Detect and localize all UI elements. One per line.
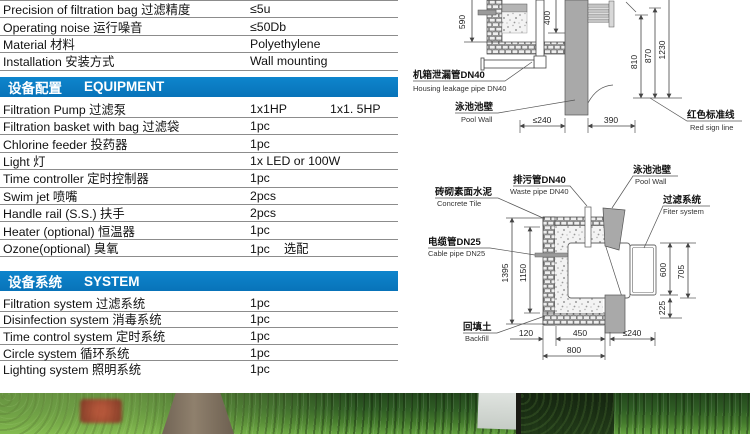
row-label: Swim jet 喷嘴: [0, 187, 250, 205]
swim-jet-fixture: [588, 1, 614, 27]
row-label: Heater (optional) 恒温器: [0, 222, 250, 240]
housing-leakage-label-zh: 机箱泄漏管DN40: [413, 69, 485, 81]
row-value: 1pc: [250, 346, 398, 360]
row-label: Light 灯: [0, 152, 250, 170]
table-row: Heater (optional) 恒温器 1pc: [0, 222, 398, 239]
table-row: Circle system 循环系统 1pc: [0, 345, 398, 362]
row-label: Ozone(optional) 臭氧: [0, 239, 250, 257]
table-row: Installation 安装方式 Wall mounting: [0, 53, 398, 70]
tree-trunk: [158, 393, 238, 434]
table-row: Swim jet 喷嘴 2pcs: [0, 188, 398, 205]
fence-post: [516, 393, 521, 434]
row-label: Precision of filtration bag 过滤精度: [0, 0, 250, 18]
table-row: Handle rail (S.S.) 扶手 2pcs: [0, 205, 398, 222]
row-value: Polyethylene: [250, 37, 398, 51]
cable-pipe-label-zh: 电缆管DN25: [428, 236, 482, 248]
table-row: Operating noise 运行噪音 ≤50Db: [0, 18, 398, 35]
brick-bottom-course: [543, 313, 605, 325]
pool-wall-label-en: Pool Wall: [635, 177, 667, 186]
dim-705: 705: [676, 265, 686, 279]
filter-system-label-zh: 过滤系统: [663, 194, 702, 206]
spec-panel: Precision of filtration bag 过滤精度 ≤5u Ope…: [0, 0, 398, 377]
pipe-cap: [481, 58, 484, 70]
dim-810: 810: [629, 55, 639, 69]
table-row: Time control system 定时系统 1pc: [0, 328, 398, 345]
dim-450: 450: [573, 328, 587, 338]
row-value: 2pcs: [250, 189, 398, 203]
row-value-2: 选配: [284, 242, 309, 256]
table-row: Chlorine feeder 投药器 1pc: [0, 135, 398, 152]
brick-pillar: [487, 0, 502, 43]
dim-590: 590: [457, 15, 467, 29]
vertical-pipe: [536, 0, 544, 58]
equipment-table: Filtration Pump 过滤泵 1x1HP1x1. 5HP Filtra…: [0, 101, 398, 258]
section-title-en: SYSTEM: [84, 274, 140, 289]
row-label: Filtration system 过滤系统: [0, 294, 250, 312]
dim-1150: 1150: [518, 264, 528, 283]
table-row: Material 材料 Polyethylene: [0, 36, 398, 53]
row-value: 1pc: [250, 242, 270, 256]
cable-pipe: [535, 253, 568, 257]
red-sign-blur: [80, 399, 122, 423]
row-label: Circle system 循环系统: [0, 344, 250, 362]
garden-photo: [0, 393, 750, 434]
cable-pipe-label-en: Cable pipe DN25: [428, 249, 485, 258]
brick-course: [487, 42, 565, 54]
table-row: Filtration Pump 过滤泵 1x1HP1x1. 5HP: [0, 101, 398, 118]
row-label: Material 材料: [0, 35, 250, 53]
dim-1395: 1395: [500, 263, 510, 282]
row-value: 1pc: [250, 119, 398, 133]
row-label: Chlorine feeder 投药器: [0, 135, 250, 153]
section-title-zh: 设备配置: [8, 77, 62, 97]
row-label: Lighting system 照明系统: [0, 360, 250, 378]
pipe-elbow: [534, 56, 546, 68]
dark-hedge: [518, 393, 614, 434]
row-label: Disinfection system 消毒系统: [0, 310, 250, 328]
table-row: Time controller 定时控制器 1pc: [0, 170, 398, 187]
concrete-fill: [555, 243, 568, 298]
white-sign: [477, 393, 518, 430]
row-label: Time control system 定时系统: [0, 327, 250, 345]
table-row: Lighting system 照明系统 1pc: [0, 361, 398, 377]
ground-arc: [588, 85, 613, 103]
wall-mount-section-diagram: 590 400 机箱泄漏管DN40 Housing leakage pipe D…: [398, 0, 750, 140]
pool-wall-label-en: Pool Wall: [461, 115, 493, 124]
filter-system-box: [630, 245, 656, 295]
equipment-section-header: 设备配置 EQUIPMENT: [0, 77, 398, 97]
pool-wall-label-zh: 泳池池壁: [633, 164, 672, 176]
dim-800: 800: [567, 345, 581, 355]
row-label: Operating noise 运行噪音: [0, 18, 250, 36]
row-label: Handle rail (S.S.) 扶手: [0, 204, 250, 222]
dim-240: ≤240: [623, 328, 642, 338]
row-value: 1pc: [250, 296, 398, 310]
general-spec-table: Precision of filtration bag 过滤精度 ≤5u Ope…: [0, 0, 398, 71]
table-row: Light 灯 1x LED or 100W: [0, 153, 398, 170]
filter-system-label-en: Fiter system: [663, 207, 704, 216]
row-value: 1x1HP: [250, 102, 287, 116]
dim-600: 600: [658, 263, 668, 277]
dim-120: 120: [519, 328, 533, 338]
section-title-en: EQUIPMENT: [84, 79, 164, 94]
concrete-tile-label-en: Concrete Tile: [437, 199, 481, 208]
dim-1230: 1230: [657, 40, 667, 59]
system-section-header: 设备系统 SYSTEM: [0, 271, 398, 291]
concrete-tile-label-zh: 砖砌素面水泥: [435, 186, 493, 198]
row-label: Time controller 定时控制器: [0, 169, 250, 187]
spec-sheet-page: Precision of filtration bag 过滤精度 ≤5u Ope…: [0, 0, 750, 434]
row-value: ≤50Db: [250, 20, 398, 34]
leakage-pipe: [484, 60, 534, 68]
row-value: Wall mounting: [250, 54, 398, 68]
dim-390: 390: [604, 115, 618, 125]
row-value: 1pc: [250, 171, 398, 185]
row-label: Installation 安装方式: [0, 52, 250, 70]
concrete-fill: [555, 298, 603, 313]
backfill-label-en: Backfill: [465, 334, 489, 343]
leader-line: [626, 2, 636, 12]
table-row: Precision of filtration bag 过滤精度 ≤5u: [0, 1, 398, 18]
waste-pipe: [585, 207, 591, 247]
dim-400: 400: [542, 11, 552, 25]
row-label: Filtration basket with bag 过滤袋: [0, 117, 250, 135]
waste-pipe-label-en: Waste pipe DN40: [510, 187, 569, 196]
row-value: 1x LED or 100W: [250, 154, 398, 168]
system-table: Filtration system 过滤系统 1pc Disinfection …: [0, 295, 398, 377]
row-label: Filtration Pump 过滤泵: [0, 100, 250, 118]
pool-wall: [565, 0, 588, 115]
section-title-zh: 设备系统: [8, 271, 62, 291]
row-value: 1pc: [250, 223, 398, 237]
dim-240: ≤240: [533, 115, 552, 125]
waste-pipe-label-zh: 排污管DN40: [513, 174, 566, 186]
concrete-fill: [502, 12, 527, 33]
pool-wall-label-zh: 泳池池壁: [455, 101, 494, 113]
row-value: 1pc: [250, 329, 398, 343]
table-row: Disinfection system 消毒系统 1pc: [0, 312, 398, 329]
brick-left-wall: [543, 217, 555, 325]
table-row: Filtration system 过滤系统 1pc: [0, 295, 398, 312]
row-value: 1pc: [250, 137, 398, 151]
concrete-cap: [502, 4, 527, 12]
row-value: 1pc: [250, 362, 398, 376]
inlet-pipe: [478, 10, 496, 15]
row-value: 1pc: [250, 312, 398, 326]
row-value-2: 1x1. 5HP: [330, 102, 381, 116]
red-sign-line-label-zh: 红色标准线: [687, 109, 735, 121]
inground-section-diagram: 1395 1150 600 705 225 120 450 ≤240 800 砖…: [398, 140, 750, 375]
table-row: Ozone(optional) 臭氧 1pc选配: [0, 240, 398, 257]
red-sign-line-label-en: Red sign line: [690, 123, 733, 132]
dim-870: 870: [643, 49, 653, 63]
filter-housing: [568, 243, 630, 298]
backfill-label-zh: 回填土: [463, 321, 492, 333]
dim-225: 225: [657, 301, 667, 315]
row-value: ≤5u: [250, 2, 398, 16]
housing-leakage-label-en: Housing leakage pipe DN40: [413, 84, 506, 93]
row-value: 2pcs: [250, 206, 398, 220]
table-row: Filtration basket with bag 过滤袋 1pc: [0, 118, 398, 135]
